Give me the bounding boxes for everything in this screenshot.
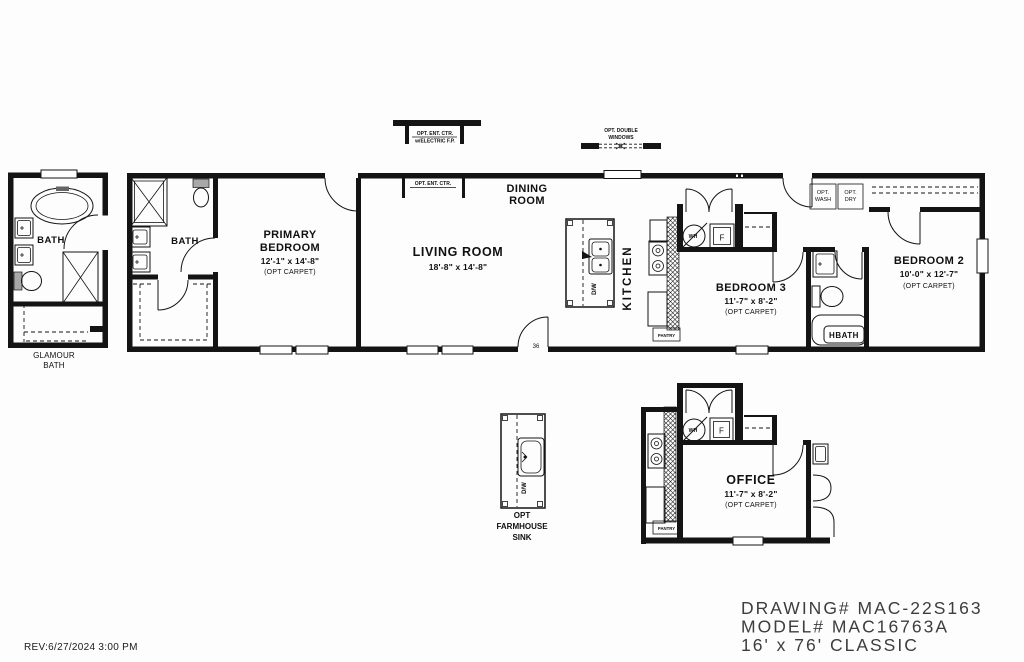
bedroom3-window	[736, 346, 768, 354]
kitchen-island: D/W	[566, 219, 614, 307]
water-heater-icon: WH	[682, 223, 707, 248]
office-door-arcs	[686, 390, 803, 475]
dining-room-name-1: DINING	[507, 183, 548, 195]
floor-plan-sheet: OPT. ENT. CTR. w/ELECTRIC F.P. OPT. DOUB…	[0, 0, 1024, 662]
water-heater-label: WH	[689, 234, 698, 240]
main-floor-plan: BATH PRIMARY BEDROOM 12'-1" x 14'-8" (OP…	[127, 171, 988, 355]
sink-icon	[15, 218, 33, 238]
opt-dbl-win-label-2: WINDOWS	[608, 135, 634, 141]
refrigerator-icon	[646, 487, 665, 523]
primary-bedroom-window	[296, 346, 328, 354]
opt-dbl-win-label-1: OPT. DOUBLE	[604, 128, 638, 134]
pantry-label: PANTRY	[658, 333, 675, 338]
furnace-icon: F	[710, 418, 733, 441]
opt-wash-label-2: WASH	[815, 197, 831, 203]
primary-bedroom-window	[260, 346, 292, 354]
sink-icon	[15, 245, 33, 265]
opt-wash-label-1: OPT.	[817, 190, 830, 196]
living-room-name: LIVING ROOM	[413, 245, 504, 259]
dishwasher-label: D/W	[592, 283, 598, 295]
opt-ent-fp-label-2: w/ELECTRIC F.P.	[414, 139, 455, 145]
shower-icon	[63, 252, 98, 303]
office-opt-carpet: (OPT CARPET)	[725, 502, 777, 509]
farm-dishwasher-label: D/W	[522, 482, 528, 494]
toilet-icon	[193, 179, 209, 207]
farmhouse-sink-icon	[518, 438, 544, 476]
partial-bath-fixtures	[813, 444, 834, 537]
glamour-closet	[24, 304, 88, 342]
opt-dry-label-1: OPT.	[844, 190, 857, 196]
opt-double-windows-symbol: OPT. DOUBLE WINDOWS	[581, 128, 661, 149]
sink-icon	[130, 252, 150, 272]
bedroom3-opt-carpet: (OPT CARPET)	[725, 309, 777, 316]
living-room-window	[442, 346, 473, 354]
farmhouse-sink-option: D/W OPT FARMHOUSE SINK	[496, 414, 548, 542]
farm-caption-1: OPT	[514, 511, 531, 520]
office-option-plan: WH F PANTRY OFFICE 11'-7" x 8'-2"	[641, 383, 834, 545]
range-icon	[649, 241, 667, 275]
sink-icon	[130, 227, 150, 247]
farm-caption-2: FARMHOUSE	[496, 522, 548, 531]
toilet-icon	[812, 286, 843, 307]
office-f-label: F	[719, 427, 724, 436]
office-name: OFFICE	[726, 473, 775, 487]
primary-bedroom-name-2: BEDROOM	[260, 242, 320, 254]
bedroom2-closet	[872, 187, 978, 193]
counter-cabinet	[650, 220, 667, 242]
double-sink-icon	[582, 239, 612, 274]
kitchen-counter	[667, 217, 679, 330]
refrigerator-icon	[648, 292, 667, 326]
sink-icon	[813, 251, 837, 277]
dining-window	[604, 171, 641, 179]
farm-caption-3: SINK	[512, 533, 531, 542]
living-room-dims: 18'-8" x 14'-8"	[429, 262, 488, 272]
bedroom2-dims: 10'-0" x 12'-7"	[900, 269, 959, 279]
opt-ent-label: OPT. ENT. CTR.	[415, 181, 452, 187]
main-interior-walls	[132, 178, 980, 347]
range-icon	[648, 434, 665, 468]
bathtub-icon	[31, 187, 93, 225]
floor-plan-drawing: OPT. ENT. CTR. w/ELECTRIC F.P. OPT. DOUB…	[0, 0, 1024, 662]
office-pantry-label: PANTRY	[658, 526, 675, 531]
opt-ent-fp-label-1: OPT. ENT. CTR.	[417, 131, 454, 137]
title-block: DRAWING# MAC-22S163 MODEL# MAC16763A 16'…	[741, 598, 983, 655]
primary-bedroom-opt-carpet: (OPT CARPET)	[264, 269, 316, 276]
office-kitchen-counter	[664, 407, 676, 522]
kitchen-area: D/W PANTRY KITCHEN	[566, 217, 680, 341]
dining-room-name-2: ROOM	[509, 195, 545, 207]
washer-box: OPT. WASH	[810, 184, 836, 209]
glamour-caption-2: BATH	[43, 361, 65, 370]
office-dims: 11'-7" x 8'-2"	[724, 489, 777, 499]
revision-stamp: REV:6/27/2024 3:00 PM	[24, 642, 138, 653]
opt-entertainment-center-fp-symbol: OPT. ENT. CTR. w/ELECTRIC F.P.	[393, 120, 481, 145]
bedroom2-name: BEDROOM 2	[894, 255, 964, 267]
water-heater-icon: WH	[682, 417, 707, 442]
utility-closet: WH F	[682, 223, 734, 248]
laundry-area: OPT. WASH OPT. DRY	[810, 184, 863, 209]
entry-door-size-label: 36	[533, 344, 540, 350]
hall-bath: HBATH	[812, 251, 867, 345]
drawing-number: DRAWING# MAC-22S163	[741, 598, 983, 618]
opt-entertainment-center-marker: OPT. ENT. CTR.	[402, 178, 465, 198]
primary-closet	[133, 284, 211, 340]
primary-bedroom-dims: 12'-1" x 14'-8"	[261, 256, 320, 266]
glamour-bath-plan: BATH GLAMOUR BATH	[8, 170, 108, 370]
kitchen-name: KITCHEN	[622, 245, 634, 310]
bedroom2-opt-carpet: (OPT CARPET)	[903, 283, 955, 290]
glamour-bath-walls	[8, 173, 108, 349]
furnace-icon: F	[710, 224, 734, 248]
hbath-label: HBATH	[829, 331, 859, 340]
glamour-caption-1: GLAMOUR	[33, 351, 75, 360]
toilet-icon	[14, 272, 42, 291]
living-room-window	[407, 346, 438, 354]
main-exterior-walls	[127, 173, 985, 352]
primary-bath-label: BATH	[171, 236, 199, 247]
shower-icon	[131, 178, 167, 227]
bedroom3-dims: 11'-7" x 8'-2"	[724, 296, 777, 306]
model-number: MODEL# MAC16763A	[741, 617, 949, 637]
bathtub-icon: HBATH	[812, 315, 867, 345]
bedroom2-window	[977, 239, 988, 273]
primary-bedroom-name-1: PRIMARY	[263, 229, 316, 241]
glamour-bath-room-label: BATH	[37, 235, 65, 246]
office-window	[733, 537, 763, 545]
furnace-label: F	[720, 234, 725, 243]
opt-dry-label-2: DRY	[845, 197, 857, 203]
model-size: 16' x 76' CLASSIC	[741, 635, 919, 655]
primary-bath: BATH	[130, 178, 211, 341]
bedroom3-name: BEDROOM 3	[716, 282, 786, 294]
office-wh-label: WH	[689, 428, 698, 434]
glamour-bath-window	[41, 170, 77, 178]
dryer-box: OPT. DRY	[838, 184, 863, 209]
